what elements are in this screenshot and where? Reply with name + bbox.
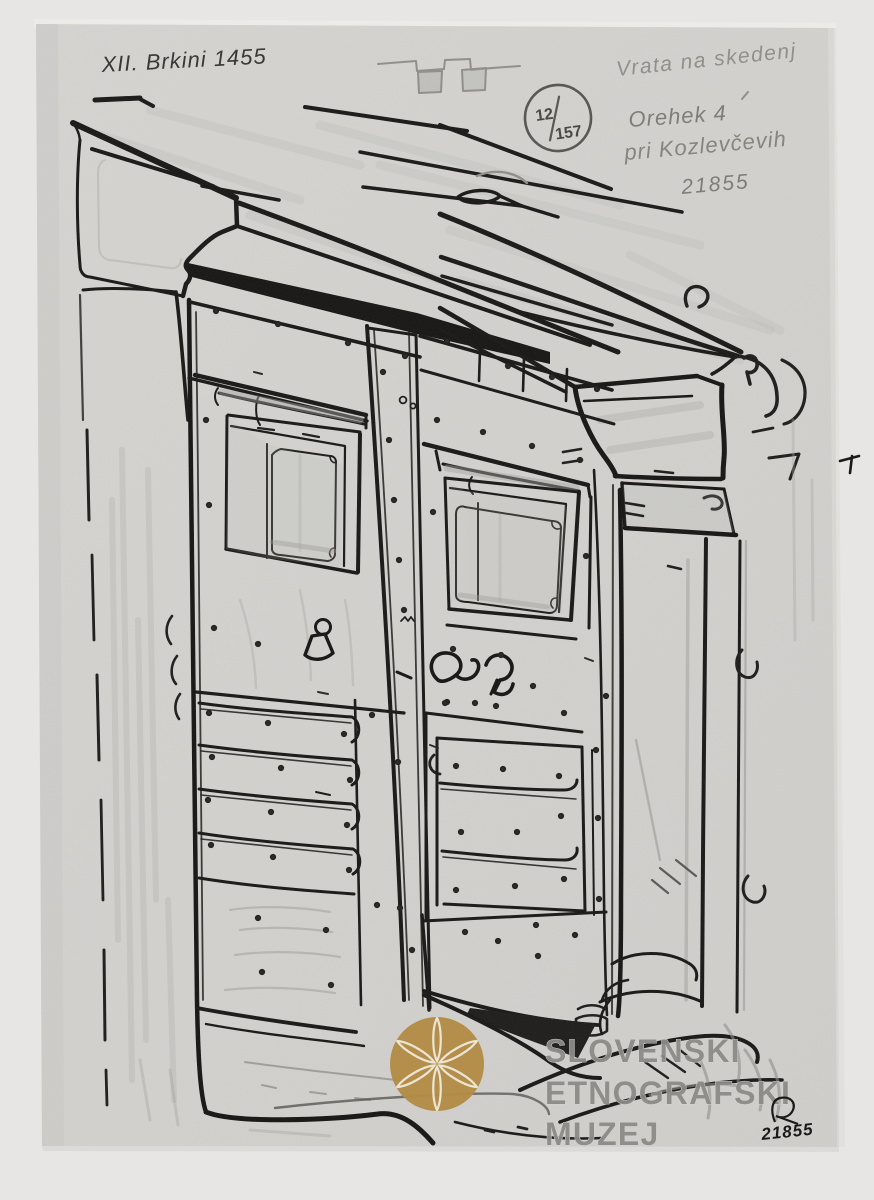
svg-text:MUZEJ: MUZEJ bbox=[545, 1116, 659, 1152]
svg-text:SLOVENSKI: SLOVENSKI bbox=[545, 1033, 741, 1069]
svg-text:ETNOGRAFSKI: ETNOGRAFSKI bbox=[545, 1075, 791, 1111]
